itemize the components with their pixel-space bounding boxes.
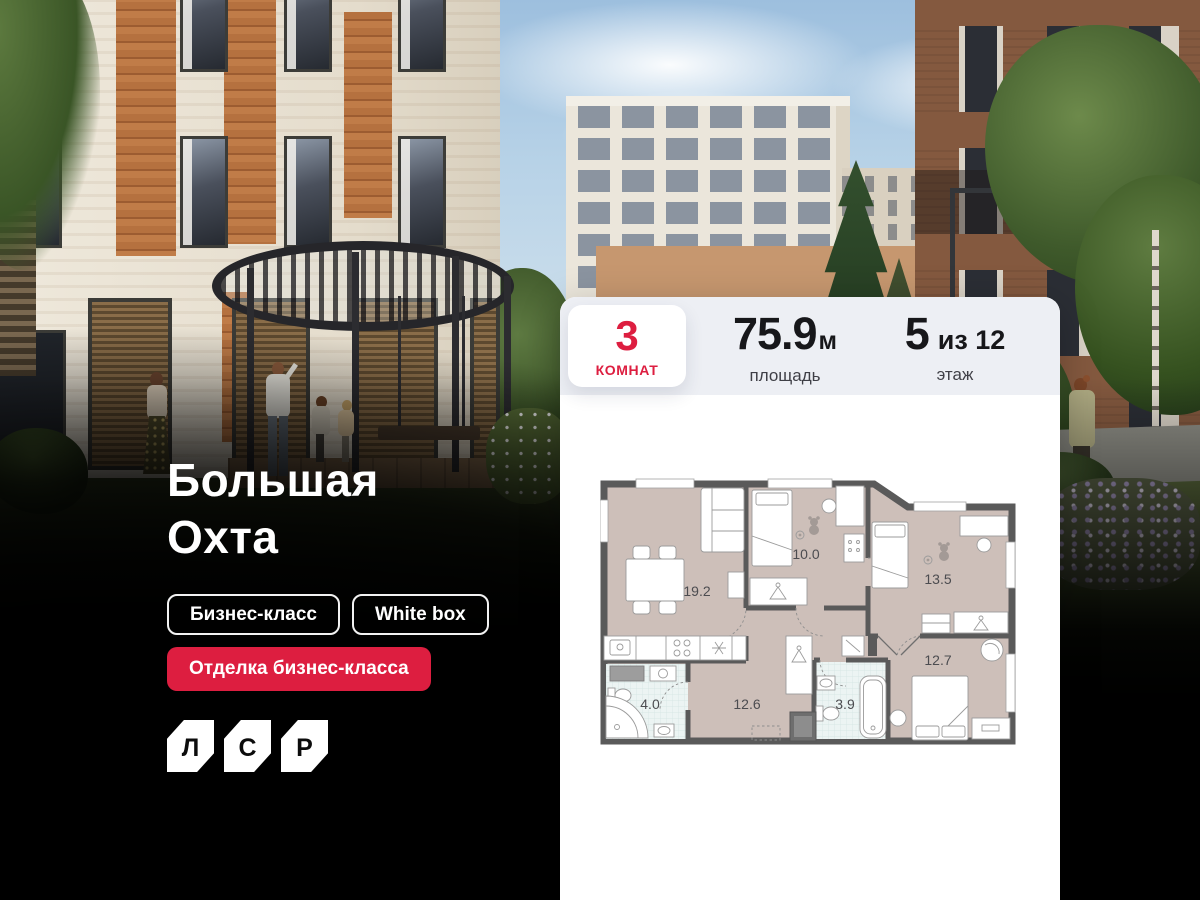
rooms-chip[interactable]: 3 комнат — [568, 305, 686, 387]
logo-letter: Р — [296, 734, 313, 763]
project-title: Большая Охта — [167, 452, 489, 566]
area-unit: м — [819, 327, 838, 355]
logo-tile: Р — [281, 720, 328, 772]
rooms-value: 3 — [615, 315, 638, 357]
room-area-label: 12.7 — [924, 652, 951, 668]
brick-strip — [344, 12, 392, 218]
window — [180, 136, 228, 248]
rooms-label: комнат — [596, 362, 659, 378]
area-label: площадь — [710, 366, 860, 386]
window — [398, 0, 446, 72]
pergola-post — [247, 268, 254, 472]
room-area-label: 19.2 — [683, 583, 710, 599]
tag-business-class[interactable]: Бизнес-класс — [167, 594, 340, 635]
flower-bush — [1042, 478, 1200, 590]
swing-rope — [462, 296, 465, 428]
project-title-line1: Большая — [167, 454, 379, 506]
swing-bench — [378, 426, 480, 440]
room-area-label: 3.9 — [835, 696, 855, 712]
vine-plants — [0, 0, 100, 270]
apartment-card: 3 комнат 75.9м площадь 5из 12 этаж — [560, 297, 1060, 900]
lsr-logo: Л С Р — [167, 720, 489, 772]
logo-tile: Л — [167, 720, 214, 772]
real-estate-banner: Большая Охта Бизнес-класс White box Отде… — [0, 0, 1200, 900]
floor-label: этаж — [875, 365, 1035, 385]
room-area-label: 4.0 — [640, 696, 660, 712]
floor-of-total: из 12 — [938, 325, 1006, 355]
room-area-label: 12.6 — [733, 696, 760, 712]
floor-value: 5 — [905, 308, 929, 359]
stat-area: 75.9м площадь — [710, 309, 860, 386]
tag-row: Бизнес-класс White box — [167, 594, 489, 635]
area-value: 75.9 — [733, 308, 817, 359]
window — [398, 136, 446, 248]
floor-plan: 19.2 10.0 13.5 12.7 12.6 4.0 3.9 — [600, 478, 1016, 746]
window — [284, 0, 332, 72]
hero-info: Большая Охта Бизнес-класс White box Отде… — [167, 452, 489, 772]
tag-white-box[interactable]: White box — [352, 594, 489, 635]
window — [284, 136, 332, 248]
logo-letter: С — [238, 734, 256, 763]
stats-bar: 3 комнат 75.9м площадь 5из 12 этаж — [560, 297, 1060, 395]
room-area-label: 13.5 — [924, 571, 951, 587]
stat-floor: 5из 12 этаж — [875, 309, 1035, 385]
project-title-line2: Охта — [167, 511, 278, 563]
logo-letter: Л — [182, 734, 200, 763]
pergola-canopy — [212, 241, 514, 331]
area-value-row: 75.9м — [710, 309, 860, 366]
brick-strip — [224, 0, 276, 244]
window — [180, 0, 228, 72]
swing-rope — [398, 296, 401, 428]
floor-value-row: 5из 12 — [875, 309, 1035, 365]
room-area-label: 10.0 — [792, 546, 819, 562]
tag-finishing[interactable]: Отделка бизнес-класса — [167, 647, 431, 691]
logo-tile: С — [224, 720, 271, 772]
brick-strip — [116, 0, 176, 256]
